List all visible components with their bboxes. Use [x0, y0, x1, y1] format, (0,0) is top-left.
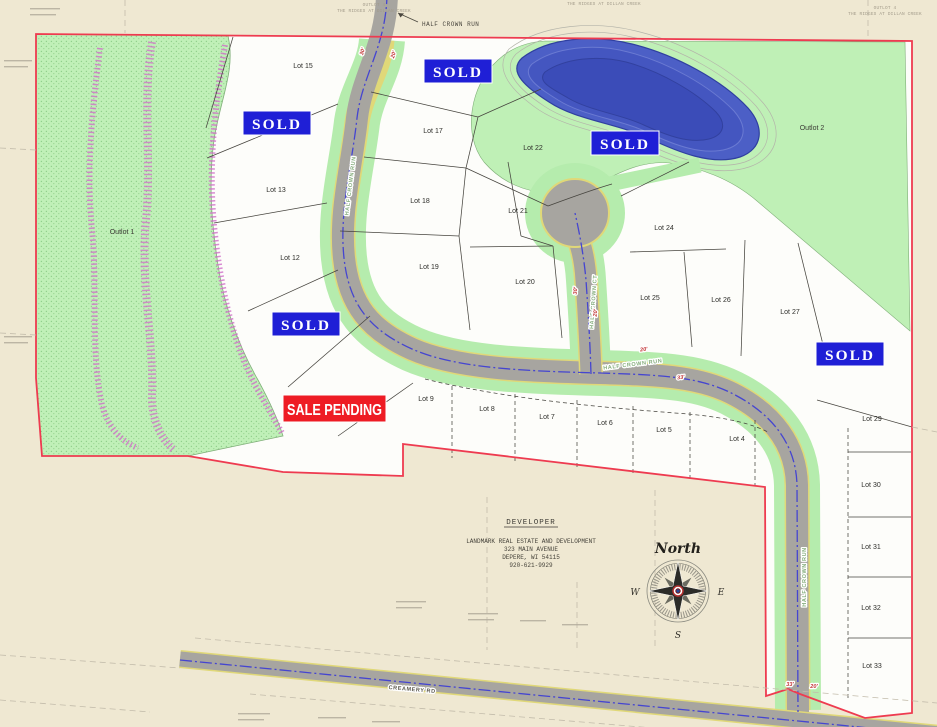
developer-line: 323 MAIN AVENUE [504, 546, 558, 553]
lot-label: Lot 25 [640, 295, 660, 302]
sold-badge-label: SOLD [600, 137, 650, 153]
developer-line: 920-621-9929 [509, 562, 553, 569]
compass-east-label: E [717, 588, 725, 598]
compass-west-label: W [630, 588, 640, 598]
sold-badge: SOLD [816, 342, 884, 366]
compass-south-label: S [675, 631, 681, 641]
plat-note-label: THE RIDGES AT DILLAN CREEK [567, 2, 641, 7]
sold-badge: SOLD [272, 312, 340, 336]
sale-pending-label: SALE PENDING [287, 402, 382, 419]
lot-label: Lot 32 [861, 605, 881, 612]
sold-badge-label: SOLD [825, 348, 875, 364]
developer-heading: DEVELOPER [506, 519, 556, 527]
plat-note-label: OUTLOT 4 [874, 6, 897, 11]
sold-badge-label: SOLD [433, 65, 483, 81]
sold-badge: SOLD [591, 131, 659, 155]
compass-hub-center [676, 589, 680, 593]
plat-note-label: THE RIDGES AT DILLAN CREEK [848, 12, 922, 17]
lot-label: Lot 21 [508, 208, 528, 215]
dimension-label: 20' [809, 684, 818, 690]
lot-label: Lot 30 [861, 482, 881, 489]
street-name-label: HALF CROWN RUN [802, 547, 808, 606]
dimension-label: 33' [786, 682, 794, 688]
outlot-1-label: Outlot 1 [110, 229, 135, 236]
lot-label: Lot 15 [293, 63, 313, 70]
lot-label: Lot 8 [479, 406, 495, 413]
sold-badge: SOLD [424, 59, 492, 83]
plat-note-label: OUTLOT 4 [363, 3, 386, 8]
sold-badge-label: SOLD [252, 117, 302, 133]
lot-label: Lot 18 [410, 198, 430, 205]
lot-label: Lot 24 [654, 225, 674, 232]
lot-label: Lot 4 [729, 436, 745, 443]
lot-label: Lot 20 [515, 279, 535, 286]
lot-label: Lot 27 [780, 309, 800, 316]
lot-label: Lot 29 [862, 416, 882, 423]
lot-label: Lot 5 [656, 427, 672, 434]
lot-label: Lot 26 [711, 297, 731, 304]
lot-label: Lot 6 [597, 420, 613, 427]
lot-label: Lot 19 [419, 264, 439, 271]
lot-label: Lot 17 [423, 128, 443, 135]
lot-label: Lot 9 [418, 396, 434, 403]
dimension-label: 20' [639, 346, 649, 353]
developer-line: LANDMARK REAL ESTATE AND DEVELOPMENT [466, 538, 596, 545]
lot-label: Lot 33 [862, 663, 882, 670]
lot-label: Lot 31 [861, 544, 881, 551]
compass-north-label: North [654, 541, 701, 557]
lot-label: Lot 7 [539, 414, 555, 421]
dimension-label: 20' [593, 308, 600, 318]
dimension-label: 33' [677, 374, 686, 381]
dimension-label: 30' [573, 286, 580, 295]
developer-line: DEPERE, WI 54115 [502, 554, 560, 561]
sold-badge-label: SOLD [281, 318, 331, 334]
lot-label: Lot 22 [523, 145, 543, 152]
lot-label: Lot 12 [280, 255, 300, 262]
outlot-2-label: Outlot 2 [800, 125, 825, 132]
lot-label: Lot 13 [266, 187, 286, 194]
plat-map: Lot 4Lot 5Lot 6Lot 7Lot 8Lot 9Lot 12Lot … [0, 0, 937, 727]
sale-pending-badge: SALE PENDING [283, 395, 386, 422]
road-callout-label: HALF CROWN RUN [422, 21, 479, 28]
sold-badge: SOLD [243, 111, 311, 135]
